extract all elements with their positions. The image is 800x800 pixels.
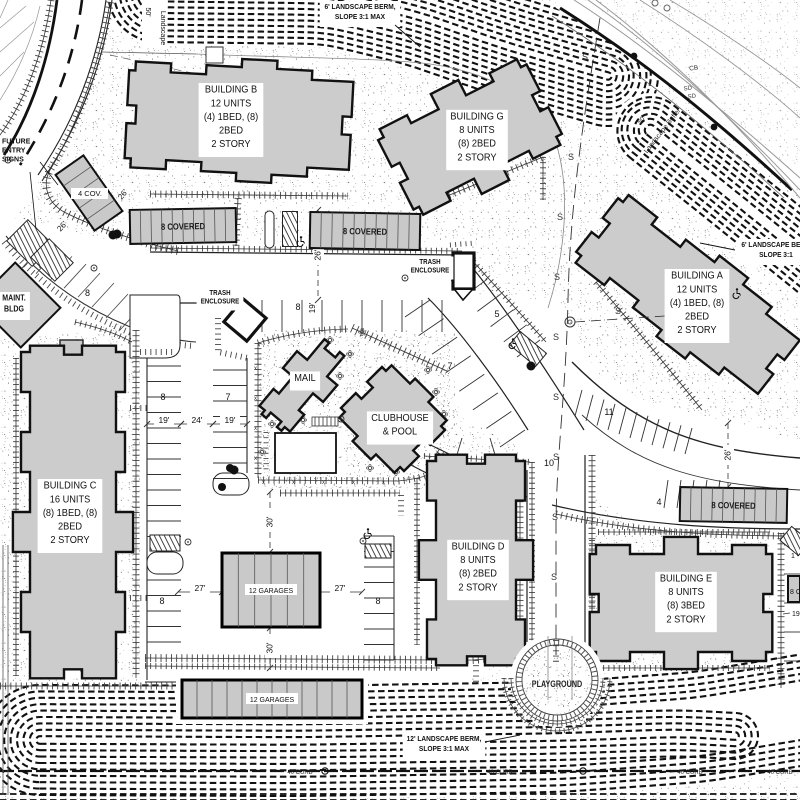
svg-text:26': 26' xyxy=(313,249,323,260)
svg-text:8: 8 xyxy=(295,302,300,312)
svg-text:MAIL: MAIL xyxy=(294,373,316,385)
svg-text:S: S xyxy=(553,452,559,462)
svg-text:2 STORY: 2 STORY xyxy=(666,614,706,626)
svg-text:ENTRY: ENTRY xyxy=(2,147,26,154)
svg-text:SLOPE 3:1: SLOPE 3:1 xyxy=(759,252,793,259)
svg-text:2 STORY: 2 STORY xyxy=(211,139,251,151)
svg-text:CB: CB xyxy=(689,64,699,72)
svg-text:8 UNITS: 8 UNITS xyxy=(460,555,496,567)
svg-text:2BED: 2BED xyxy=(58,521,82,533)
svg-text:FUTURE: FUTURE xyxy=(2,138,31,145)
svg-text:TRASH: TRASH xyxy=(419,259,440,266)
svg-text:S: S xyxy=(553,332,559,342)
svg-text:S: S xyxy=(615,306,621,316)
svg-text:2 STORY: 2 STORY xyxy=(457,152,497,164)
svg-text:SD: SD xyxy=(683,85,693,92)
svg-text:12 GARAGES: 12 GARAGES xyxy=(249,588,294,595)
svg-text:S: S xyxy=(554,272,560,282)
svg-text:11: 11 xyxy=(604,407,613,417)
svg-text:8: 8 xyxy=(159,596,164,606)
svg-text:BLDG: BLDG xyxy=(4,304,24,314)
svg-text:19: 19 xyxy=(792,611,800,618)
svg-text:16 UNITS: 16 UNITS xyxy=(50,494,91,506)
svg-text:8 COVERED: 8 COVERED xyxy=(161,220,205,232)
svg-text:4: 4 xyxy=(656,497,661,507)
svg-text:7: 7 xyxy=(447,361,452,371)
svg-text:40 CURB: 40 CURB xyxy=(487,770,512,776)
svg-text:ENCLOSURE: ENCLOSURE xyxy=(411,267,450,274)
svg-text:S: S xyxy=(552,512,558,522)
svg-text:(8) 3BED: (8) 3BED xyxy=(667,600,705,612)
svg-text:x: x xyxy=(254,366,257,372)
svg-text:BUILDING B: BUILDING B xyxy=(205,84,258,96)
svg-text:S: S xyxy=(568,152,574,162)
svg-text:19': 19' xyxy=(224,415,235,425)
svg-text:2 STORY: 2 STORY xyxy=(677,325,717,337)
svg-text:SLOPE 3:1 MAX: SLOPE 3:1 MAX xyxy=(419,746,469,753)
svg-text:30': 30' xyxy=(265,642,275,653)
svg-text:x: x xyxy=(254,426,257,432)
svg-text:8: 8 xyxy=(375,596,380,606)
svg-text:24': 24' xyxy=(191,415,202,425)
svg-text:12' LANDSCAPE BERM,: 12' LANDSCAPE BERM, xyxy=(407,736,482,743)
svg-text:40 CURB: 40 CURB xyxy=(767,770,792,776)
svg-text:8 UNITS: 8 UNITS xyxy=(668,587,704,599)
svg-text:2 STORY: 2 STORY xyxy=(458,582,498,594)
svg-text:19': 19' xyxy=(158,415,169,425)
svg-text:6' LANDSCAPE BERM: 6' LANDSCAPE BERM xyxy=(741,242,800,249)
svg-text:(8) 2BED: (8) 2BED xyxy=(458,138,496,150)
svg-text:& POOL: & POOL xyxy=(383,426,418,438)
svg-text:x: x xyxy=(254,456,257,462)
svg-text:2BED: 2BED xyxy=(219,125,243,137)
svg-text:2 STORY: 2 STORY xyxy=(50,535,90,547)
svg-text:8: 8 xyxy=(160,392,165,402)
svg-text:27': 27' xyxy=(334,583,345,593)
svg-text:BUILDING D: BUILDING D xyxy=(452,541,505,553)
svg-text:40 CURB: 40 CURB xyxy=(287,770,312,776)
svg-text:x: x xyxy=(254,396,257,402)
svg-text:26': 26' xyxy=(723,449,733,460)
svg-text:8: 8 xyxy=(85,288,90,298)
svg-text:8 COVERED: 8 COVERED xyxy=(711,499,755,511)
svg-text:8 COVERED: 8 COVERED xyxy=(343,225,387,237)
svg-text:S: S xyxy=(553,392,559,402)
svg-text:SLOPE 3:1 MAX: SLOPE 3:1 MAX xyxy=(335,14,385,21)
svg-text:12 UNITS: 12 UNITS xyxy=(677,284,718,296)
svg-text:1 -: 1 - xyxy=(791,553,800,560)
svg-text:50': 50' xyxy=(144,7,151,16)
svg-text:S: S xyxy=(557,212,563,222)
svg-text:27': 27' xyxy=(194,583,205,593)
svg-text:8 C: 8 C xyxy=(790,589,800,596)
svg-text:BUILDING E: BUILDING E xyxy=(660,573,713,585)
svg-text:SD: SD xyxy=(687,93,697,100)
svg-text:6' LANDSCAPE BERM,: 6' LANDSCAPE BERM, xyxy=(324,4,395,11)
svg-text:BUILDING G: BUILDING G xyxy=(450,111,503,123)
svg-text:5: 5 xyxy=(494,309,499,319)
svg-text:S: S xyxy=(582,52,588,62)
svg-text:(4) 1BED, (8): (4) 1BED, (8) xyxy=(670,297,724,309)
svg-text:PLAYGROUND: PLAYGROUND xyxy=(532,679,583,689)
svg-text:30': 30' xyxy=(265,516,275,527)
svg-text:(8) 2BED: (8) 2BED xyxy=(459,568,497,580)
svg-text:x: x xyxy=(382,480,385,486)
svg-text:S: S xyxy=(551,572,557,582)
svg-text:19': 19' xyxy=(308,302,317,313)
svg-text:(8) 1BED, (8): (8) 1BED, (8) xyxy=(43,507,97,519)
svg-text:x: x xyxy=(352,480,355,486)
svg-text:TRASH: TRASH xyxy=(209,290,230,297)
svg-text:CLUBHOUSE: CLUBHOUSE xyxy=(371,413,429,425)
svg-text:BUILDING A: BUILDING A xyxy=(671,270,723,282)
svg-text:ENCLOSURE: ENCLOSURE xyxy=(201,298,240,305)
svg-text:4 COV.: 4 COV. xyxy=(78,189,102,198)
svg-text:x: x xyxy=(262,480,265,486)
svg-text:x: x xyxy=(322,480,325,486)
svg-text:12 UNITS: 12 UNITS xyxy=(211,98,252,110)
svg-text:7: 7 xyxy=(225,392,230,402)
svg-text:2BED: 2BED xyxy=(685,311,709,323)
svg-text:8 UNITS: 8 UNITS xyxy=(459,125,495,137)
svg-text:Landscape: Landscape xyxy=(159,11,166,45)
svg-text:x: x xyxy=(292,480,295,486)
svg-text:MAINT.: MAINT. xyxy=(2,293,25,303)
svg-text:40 CURB: 40 CURB xyxy=(677,770,702,776)
svg-text:BUILDING C: BUILDING C xyxy=(44,480,97,492)
svg-text:(4) 1BED, (8): (4) 1BED, (8) xyxy=(204,111,258,123)
svg-text:12 GARAGES: 12 GARAGES xyxy=(250,697,295,704)
